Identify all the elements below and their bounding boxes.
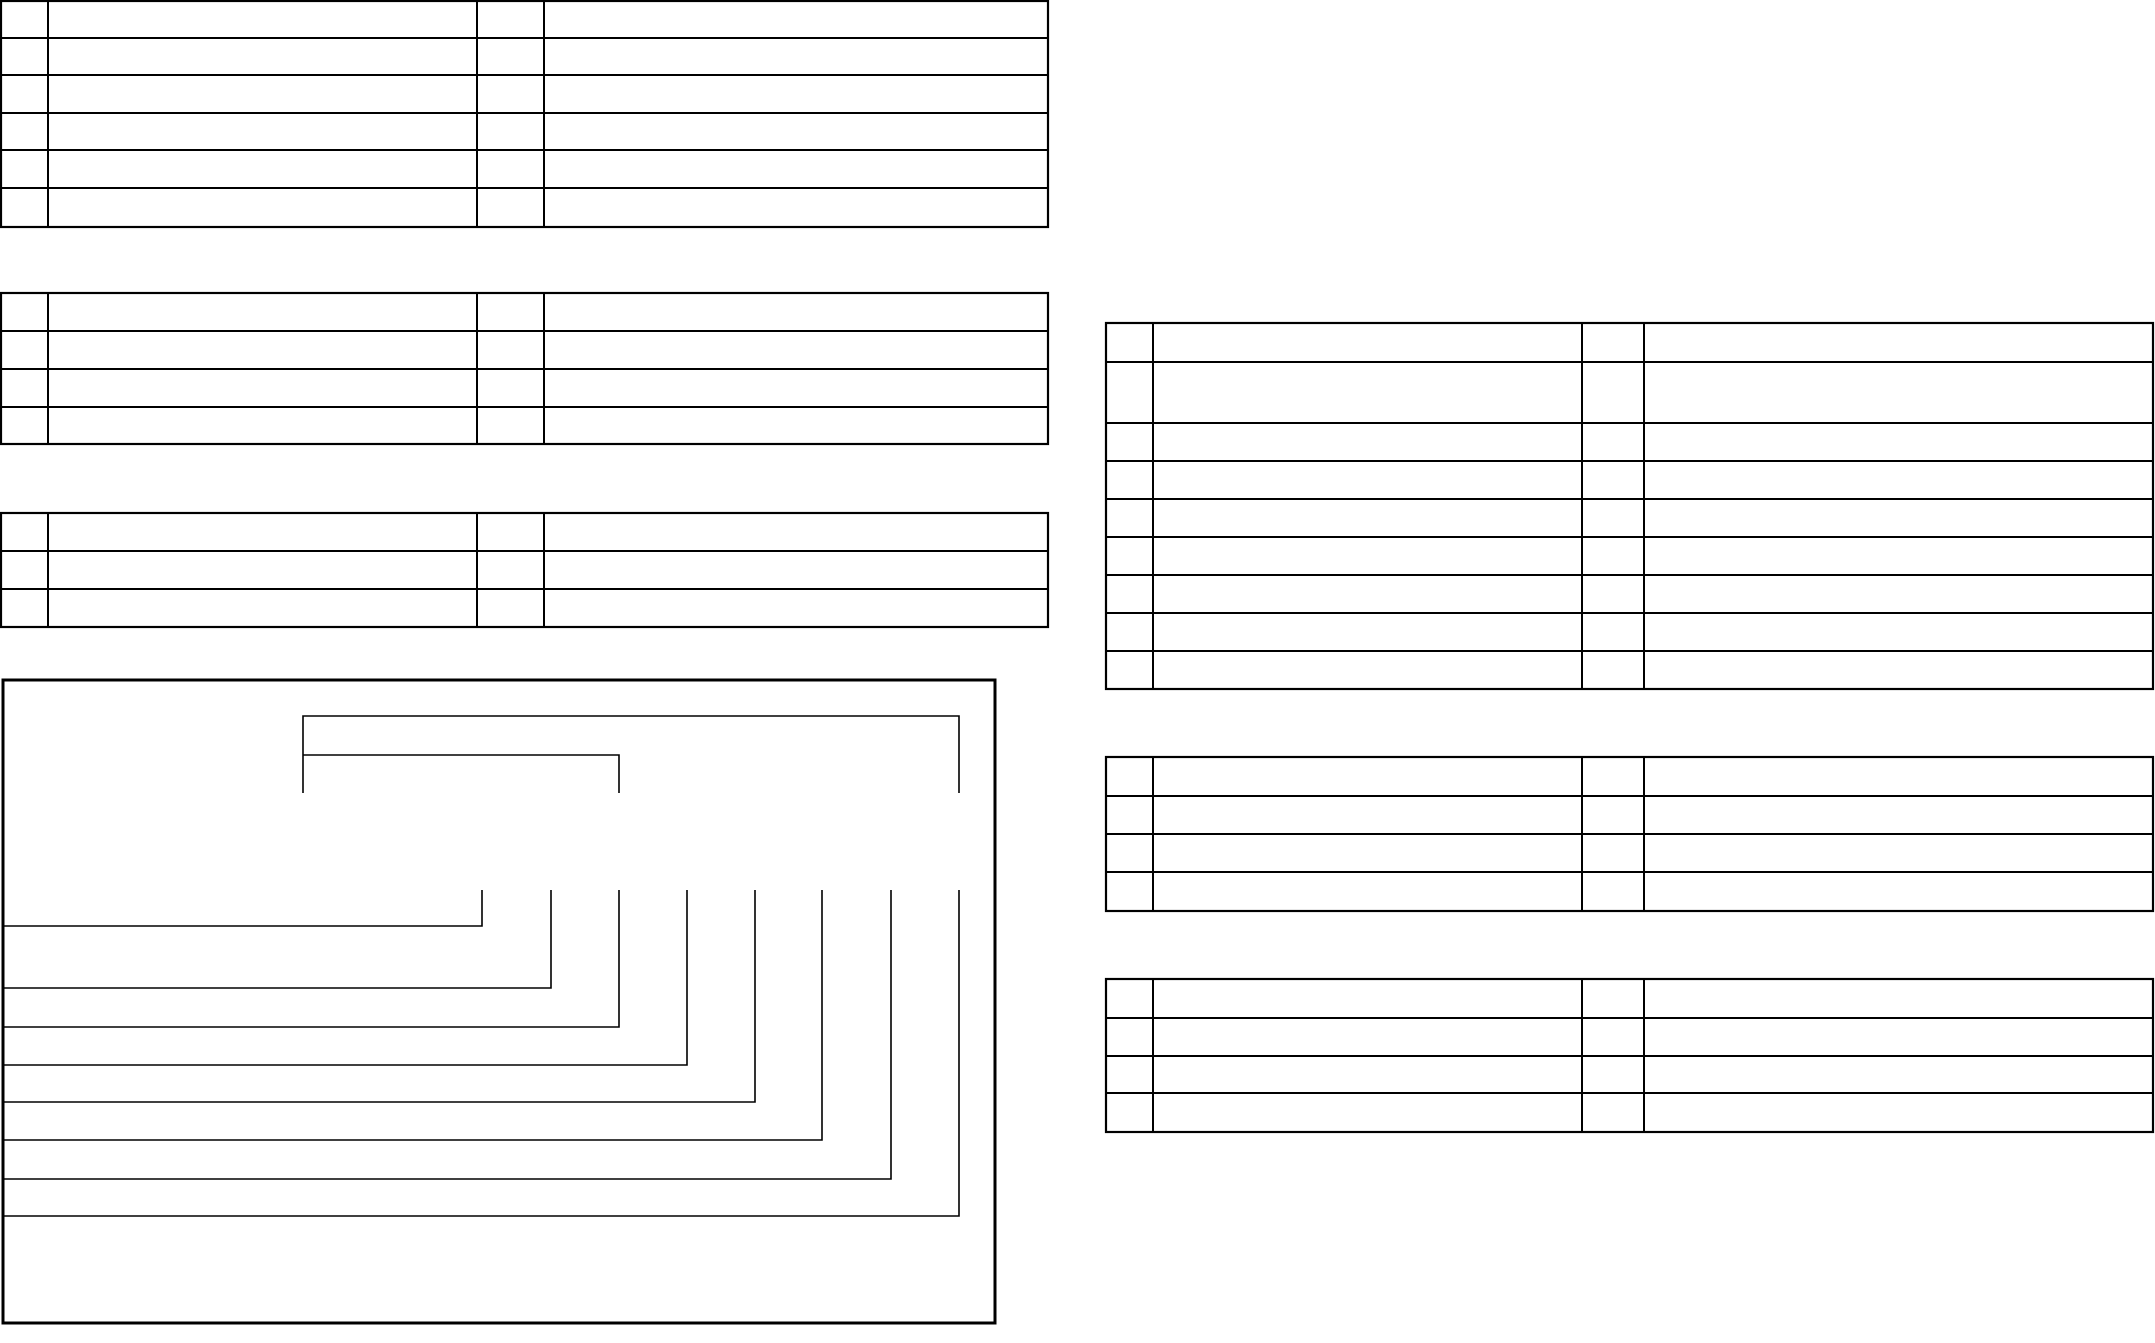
document-page [0, 0, 2155, 1343]
document-canvas [0, 0, 2155, 1343]
callout-line [3, 890, 619, 1027]
table-right-3 [1106, 979, 2153, 1132]
callout-line [3, 890, 551, 988]
callout-line [3, 890, 482, 926]
table-lower-left [1, 513, 1048, 627]
callout-line [3, 890, 891, 1179]
part-number-breakdown-diagram [3, 680, 995, 1323]
table-right-1 [1106, 323, 2153, 689]
table-right-2 [1106, 757, 2153, 911]
table-mid-left [1, 293, 1048, 444]
callout-line [3, 890, 687, 1065]
table-outline [1, 513, 1048, 627]
table-outline [1106, 323, 2153, 689]
table-top-left [1, 1, 1048, 227]
diagram-border [3, 680, 995, 1323]
bracket-line [303, 755, 619, 793]
callout-line [3, 890, 959, 1216]
callout-line [3, 890, 755, 1102]
